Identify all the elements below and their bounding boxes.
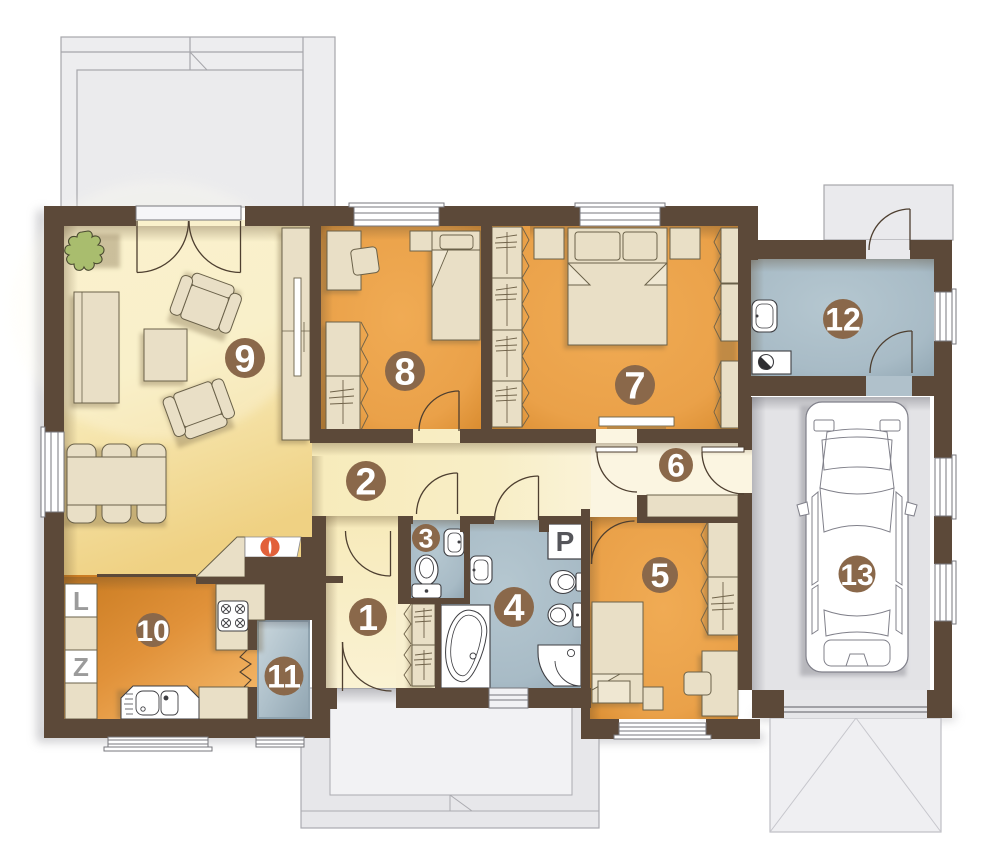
svg-text:5: 5 xyxy=(651,557,670,595)
svg-text:3: 3 xyxy=(418,524,433,554)
svg-text:P: P xyxy=(556,526,575,557)
svg-text:Z: Z xyxy=(73,652,89,682)
svg-text:7: 7 xyxy=(624,366,645,408)
svg-text:8: 8 xyxy=(394,352,415,394)
svg-text:1: 1 xyxy=(358,597,378,638)
svg-text:9: 9 xyxy=(234,339,255,381)
svg-text:10: 10 xyxy=(136,615,169,648)
svg-text:2: 2 xyxy=(355,462,376,504)
svg-text:4: 4 xyxy=(503,588,524,630)
svg-text:12: 12 xyxy=(825,302,861,338)
svg-text:6: 6 xyxy=(667,448,685,484)
svg-text:13: 13 xyxy=(840,559,873,592)
svg-text:L: L xyxy=(73,586,89,616)
svg-text:11: 11 xyxy=(267,659,301,695)
